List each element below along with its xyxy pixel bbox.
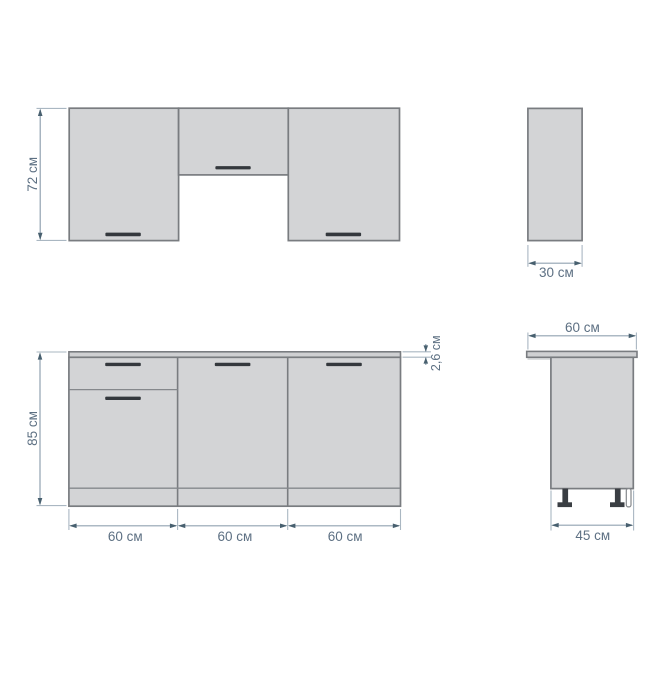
svg-text:60 см: 60 см <box>565 320 600 335</box>
svg-text:85 см: 85 см <box>25 411 40 446</box>
svg-text:2,6 см: 2,6 см <box>429 335 443 371</box>
svg-text:60 см: 60 см <box>328 529 363 544</box>
svg-text:45 см: 45 см <box>575 528 610 543</box>
svg-text:72 см: 72 см <box>25 157 40 192</box>
svg-text:60 см: 60 см <box>108 529 143 544</box>
svg-text:30 см: 30 см <box>539 265 574 280</box>
svg-text:60 см: 60 см <box>217 529 252 544</box>
